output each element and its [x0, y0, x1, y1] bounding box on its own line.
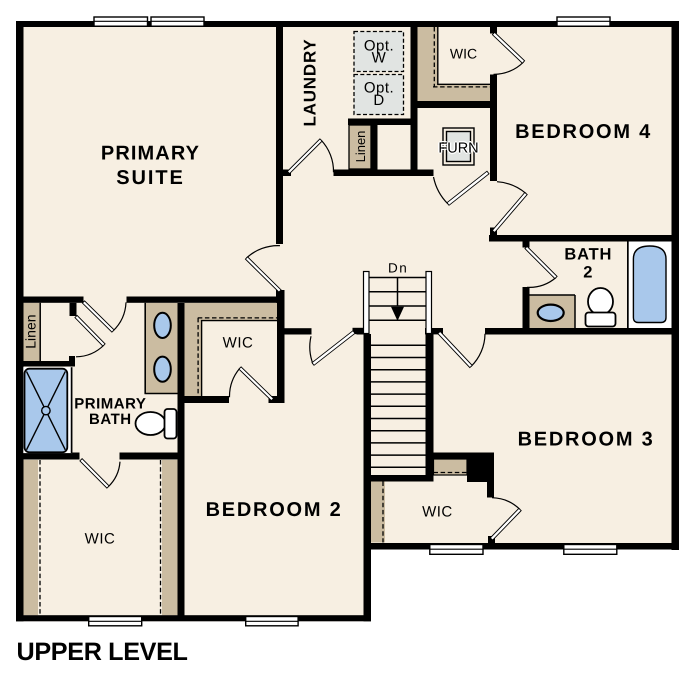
svg-text:LAUNDRY: LAUNDRY	[301, 38, 320, 126]
svg-text:SUITE: SUITE	[116, 167, 184, 189]
svg-text:WIC: WIC	[85, 531, 116, 548]
svg-text:D: D	[373, 92, 384, 109]
svg-text:BATH: BATH	[89, 411, 132, 428]
svg-text:BATH: BATH	[564, 246, 612, 264]
svg-text:BEDROOM 2: BEDROOM 2	[206, 499, 343, 521]
svg-text:UPPER LEVEL: UPPER LEVEL	[17, 638, 188, 666]
svg-text:Linen: Linen	[353, 131, 368, 163]
svg-text:Linen: Linen	[23, 314, 39, 348]
svg-text:BEDROOM 4: BEDROOM 4	[515, 121, 652, 143]
svg-text:FURN: FURN	[438, 141, 478, 157]
svg-text:WIC: WIC	[422, 504, 453, 521]
svg-text:WIC: WIC	[450, 46, 477, 62]
svg-text:Dn: Dn	[388, 261, 408, 276]
svg-text:WIC: WIC	[223, 335, 254, 352]
svg-text:2: 2	[583, 263, 593, 281]
svg-text:W: W	[372, 49, 387, 66]
svg-text:BEDROOM 3: BEDROOM 3	[518, 429, 655, 451]
svg-text:PRIMARY: PRIMARY	[74, 395, 146, 412]
svg-text:PRIMARY: PRIMARY	[101, 143, 200, 165]
